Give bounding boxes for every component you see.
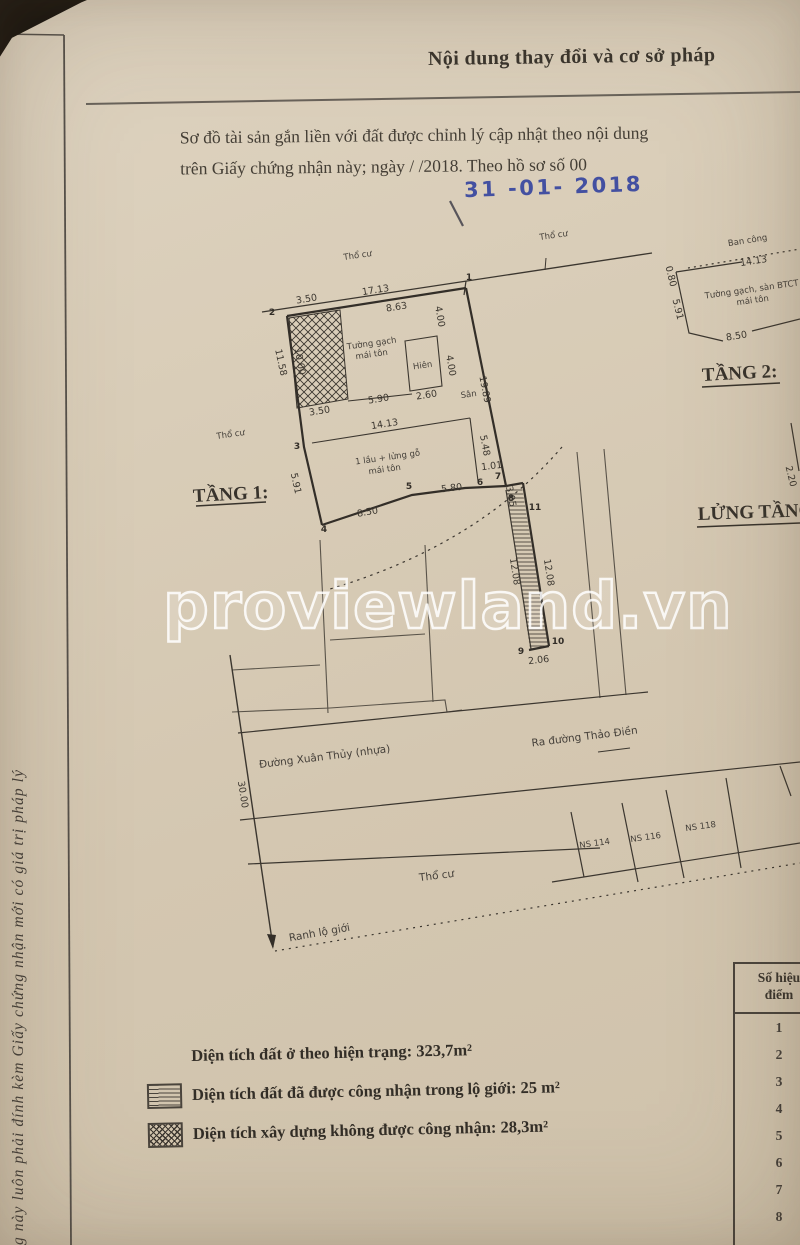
label-porch: Hiên (412, 359, 433, 373)
point-6: 6 (477, 478, 483, 488)
dim-5-90: 5.90 (367, 392, 390, 406)
point-table-header-line1: Số hiệu (735, 969, 800, 986)
table-row: 2 (735, 1041, 800, 1068)
label-balcony: Ban công (727, 232, 768, 249)
dim-5-48: 5.48 (477, 434, 492, 457)
legend-row-unrecognized: Diện tích xây dựng không được công nhận:… (148, 1113, 561, 1148)
dim-2-06: 2.06 (528, 654, 550, 667)
legend-text-road-corridor: Diện tích đất đã được công nhận trong lộ… (192, 1077, 560, 1105)
point-number-table: Số hiệu điểm 1 2 3 4 5 6 7 8 (733, 962, 800, 1245)
legend-text-unrecognized: Diện tích xây dựng không được công nhận:… (193, 1117, 549, 1144)
legend-swatch-crosshatch (148, 1122, 184, 1148)
point-table-header-line2: điểm (735, 986, 800, 1003)
dim-5-80: 5.80 (441, 482, 463, 495)
legend-swatch-hstripes (147, 1083, 183, 1109)
dim-17-13: 17.13 (361, 283, 390, 298)
label-tho-cu-top: Thổ cư (342, 248, 373, 263)
label-tho-cu-bottom: Thổ cư (417, 867, 456, 884)
table-row: 3 (735, 1068, 800, 1095)
legend-text-current-area: Diện tích đất ở theo hiện trạng: 323,7m² (191, 1040, 472, 1066)
point-9: 9 (518, 647, 524, 657)
dim-2-20: 2.20 (783, 465, 799, 488)
label-road-boundary: Ranh lộ giới (288, 922, 351, 945)
dim-3-50-bottom: 3.50 (308, 404, 331, 418)
dim-f2-0-80: 0.80 (663, 265, 679, 288)
table-row: 5 (735, 1122, 800, 1149)
legend-row-road-corridor: Diện tích đất đã được công nhận trong lộ… (147, 1074, 560, 1109)
dim-4-00-a: 4.00 (432, 305, 447, 328)
point-7: 7 (495, 472, 501, 482)
floor-2-title: TẦNG 2: (701, 360, 778, 386)
label-to-thao-dien: Ra đường Thảo Điền (531, 725, 638, 750)
dim-19-89: 19.89 (476, 375, 492, 404)
label-street-xuan-thuy: Đường Xuân Thủy (nhựa) (258, 743, 390, 771)
point-table-header: Số hiệu điểm (735, 964, 800, 1014)
dim-f2-8-50: 8.50 (725, 329, 748, 343)
label-tho-cu-mid: Thổ cư (538, 228, 569, 243)
side-note-vertical: g này luôn phải đính kèm Giấy chứng nhận… (10, 683, 28, 1245)
table-row: 8 (735, 1203, 800, 1230)
table-row: 4 (735, 1095, 800, 1122)
notes-line-1: Sơ đồ tài sản gắn liền với đất được chỉn… (180, 118, 649, 154)
point-5: 5 (406, 482, 412, 492)
area-legend: Diện tích đất ở theo hiện trạng: 323,7m²… (146, 1035, 561, 1161)
table-row: 1 (735, 1014, 800, 1041)
point-4: 4 (321, 525, 327, 535)
point-11: 11 (529, 503, 542, 513)
dim-8-50: 8.50 (356, 505, 379, 520)
page-title: Nội dung thay đổi và cơ sở pháp (428, 44, 716, 71)
table-row: 7 (735, 1176, 800, 1203)
scanned-land-document: Thổ cư Thổ cư Thổ cư Thổ cư 1 2 3 4 5 6 … (0, 0, 800, 1245)
point-2: 2 (269, 308, 275, 318)
table-row: 6 (735, 1149, 800, 1176)
point-3: 3 (294, 442, 300, 452)
dim-f2-14-13: 14.13 (739, 254, 768, 269)
dim-11-58: 11.58 (272, 348, 288, 377)
dim-8-63: 8.63 (385, 300, 408, 314)
dim-f2-5-91: 5.91 (670, 298, 686, 321)
dim-2-60: 2.60 (415, 388, 438, 402)
watermark-text: proviewland.vn (163, 570, 733, 644)
dim-30-00: 30.00 (235, 780, 250, 809)
dim-5-91: 5.91 (288, 472, 303, 495)
label-tho-cu-left: Thổ cư (215, 427, 246, 442)
label-lot-ns114: NS 114 (579, 837, 611, 851)
dim-4-00-b: 4.00 (443, 354, 458, 377)
label-lot-ns116: NS 116 (630, 831, 662, 845)
pen-slash-mark (450, 201, 463, 226)
point-1: 1 (466, 273, 472, 283)
label-yard: Sân (460, 389, 477, 401)
floor-1-title: TẦNG 1: (192, 481, 269, 507)
mezzanine-title: LỬNG TẦNG (697, 499, 800, 525)
label-lot-ns118: NS 118 (685, 820, 717, 834)
